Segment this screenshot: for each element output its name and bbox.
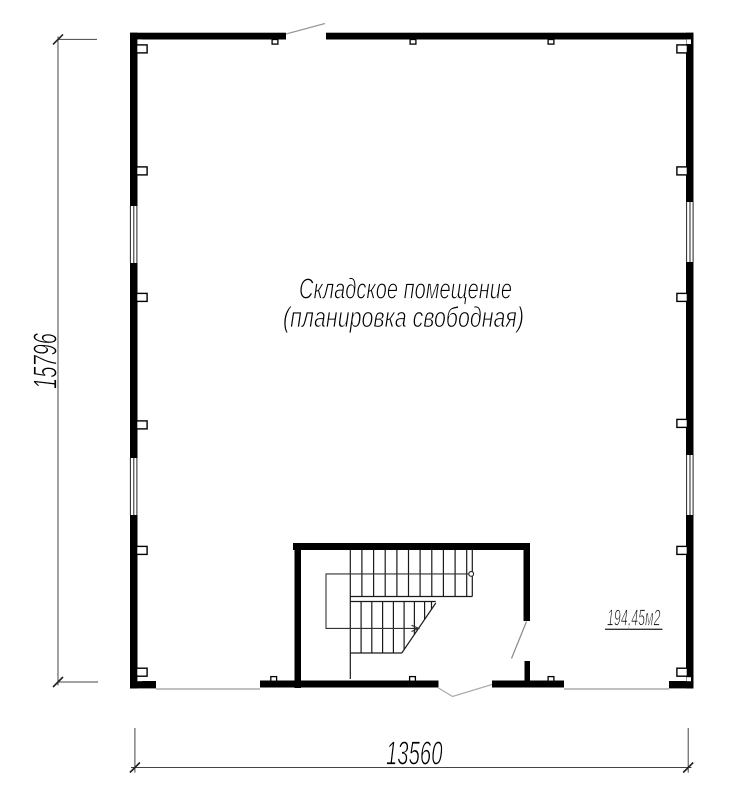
svg-text:(планировка свободная): (планировка свободная) — [283, 302, 524, 334]
svg-text:15796: 15796 — [27, 333, 64, 389]
svg-text:13560: 13560 — [386, 735, 443, 772]
svg-text:194,45м2: 194,45м2 — [607, 605, 661, 631]
svg-text:Складское помещение: Складское помещение — [299, 274, 512, 306]
